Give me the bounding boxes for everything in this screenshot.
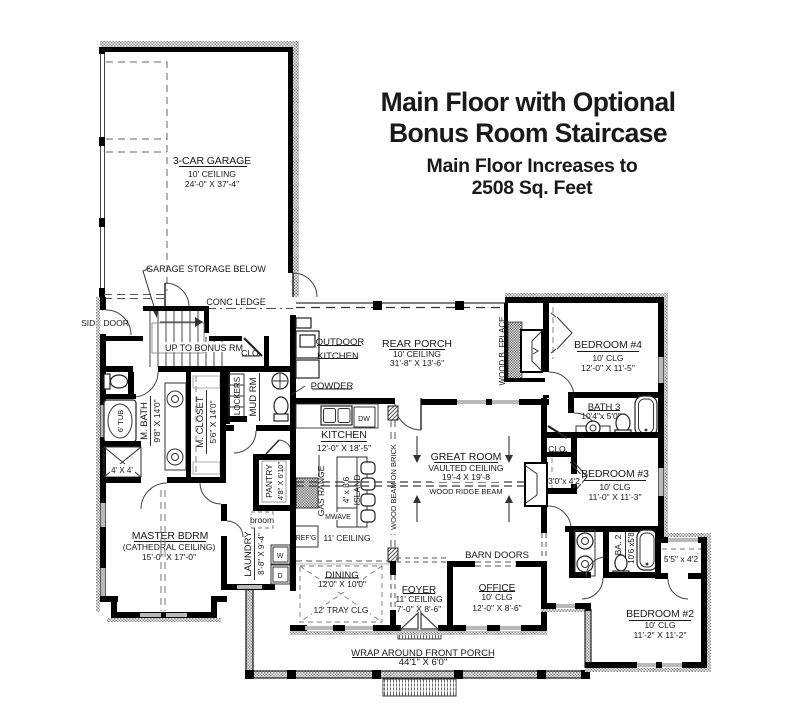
- svg-text:15'-0" X 17'-0": 15'-0" X 17'-0": [142, 552, 196, 562]
- svg-text:M. BATH: M. BATH: [139, 402, 150, 440]
- svg-text:BARN DOORS: BARN DOORS: [465, 550, 529, 561]
- svg-text:5'5" x 4'2: 5'5" x 4'2: [664, 554, 698, 564]
- svg-text:2508 Sq. Feet: 2508 Sq. Feet: [472, 177, 594, 199]
- svg-text:12'0" X 10'0": 12'0" X 10'0": [318, 579, 366, 589]
- svg-text:W: W: [277, 553, 284, 560]
- svg-text:Bonus Room Staircase: Bonus Room Staircase: [389, 118, 667, 148]
- svg-text:broom: broom: [250, 515, 274, 525]
- svg-text:19'-4 X 19'-8: 19'-4 X 19'-8: [442, 472, 490, 482]
- svg-text:BEDROOM #3: BEDROOM #3: [581, 468, 649, 480]
- svg-text:PANTRY: PANTRY: [264, 464, 274, 498]
- svg-text:DW: DW: [358, 416, 370, 423]
- svg-text:UP TO BONUS RM: UP TO BONUS RM: [165, 343, 243, 353]
- svg-text:31'-8" X 13'-6": 31'-8" X 13'-6": [390, 358, 444, 368]
- svg-text:6' TUB: 6' TUB: [116, 410, 125, 433]
- svg-text:10' CLG: 10' CLG: [644, 620, 676, 630]
- svg-text:4' x 8'6: 4' x 8'6: [341, 477, 351, 504]
- svg-text:GARAGE STORAGE BELOW: GARAGE STORAGE BELOW: [146, 264, 266, 274]
- svg-text:WOOD RIDGE BEAM: WOOD RIDGE BEAM: [429, 487, 502, 496]
- svg-text:CLO.: CLO.: [241, 348, 261, 358]
- svg-text:(CATHEDRAL CEILING): (CATHEDRAL CEILING): [123, 542, 216, 552]
- svg-text:CONC LEDGE: CONC LEDGE: [206, 297, 266, 307]
- svg-text:9'8" X 14'0": 9'8" X 14'0": [152, 399, 162, 442]
- svg-text:10' CLG: 10' CLG: [592, 353, 624, 363]
- svg-text:10' CLG: 10' CLG: [599, 482, 631, 492]
- svg-text:4' X 4': 4' X 4': [111, 466, 133, 475]
- svg-text:12'-0" X 11'-5": 12'-0" X 11'-5": [581, 363, 635, 373]
- svg-text:MASTER BDRM: MASTER BDRM: [132, 530, 209, 542]
- svg-text:7'-0" X 8'-6": 7'-0" X 8'-6": [397, 604, 442, 614]
- svg-text:MWAVE: MWAVE: [325, 514, 351, 521]
- svg-text:Main Floor with Optional: Main Floor with Optional: [381, 87, 676, 117]
- svg-text:GAS RANGE: GAS RANGE: [316, 465, 326, 516]
- svg-text:D: D: [277, 573, 282, 580]
- svg-text:10' CLG: 10' CLG: [481, 592, 513, 602]
- svg-text:3-CAR GARAGE: 3-CAR GARAGE: [173, 155, 251, 167]
- svg-text:LAUNDRY: LAUNDRY: [243, 531, 254, 577]
- svg-text:11' CEILING: 11' CEILING: [395, 594, 443, 604]
- svg-text:BEDROOM #4: BEDROOM #4: [574, 339, 642, 351]
- svg-text:KITCHEN: KITCHEN: [321, 429, 366, 441]
- svg-text:M. CLOSET: M. CLOSET: [195, 396, 206, 447]
- svg-text:44'1" X 6'0": 44'1" X 6'0": [399, 657, 447, 668]
- svg-text:SIDE DOOR: SIDE DOOR: [81, 318, 129, 328]
- svg-text:LOCKERS: LOCKERS: [233, 377, 242, 415]
- svg-text:WOOD B. FPLACE: WOOD B. FPLACE: [498, 317, 507, 386]
- svg-text:POWDER: POWDER: [311, 381, 354, 392]
- svg-text:GREAT ROOM: GREAT ROOM: [431, 451, 502, 463]
- svg-text:4'8" X 6'10": 4'8" X 6'10": [276, 462, 285, 501]
- svg-text:REF'G: REF'G: [296, 535, 317, 542]
- svg-text:10'4"x 5'0": 10'4"x 5'0": [581, 411, 621, 421]
- svg-text:3'0"x 4'2: 3'0"x 4'2: [548, 476, 580, 486]
- svg-text:MUD RM: MUD RM: [248, 377, 259, 416]
- svg-text:5'6" X 14'0": 5'6" X 14'0": [208, 400, 218, 443]
- svg-text:11'-0" X 11'-3": 11'-0" X 11'-3": [588, 492, 641, 502]
- svg-text:24'-0" X 37'-4": 24'-0" X 37'-4": [185, 179, 239, 189]
- svg-text:BEDROOM #2: BEDROOM #2: [626, 608, 694, 620]
- svg-text:10' CEILING: 10' CEILING: [188, 169, 236, 179]
- svg-text:11' CEILING: 11' CEILING: [323, 533, 371, 543]
- svg-text:8'-8" X 9'-4": 8'-8" X 9'-4": [257, 533, 266, 575]
- svg-text:12'-0" X 8'-6": 12'-0" X 8'-6": [472, 603, 522, 613]
- svg-text:12'-0" X 18'-5": 12'-0" X 18'-5": [317, 443, 371, 453]
- svg-text:WOOD BEAM ON BRICK: WOOD BEAM ON BRICK: [389, 444, 398, 530]
- svg-text:10'6 x5'8: 10'6 x5'8: [627, 532, 636, 564]
- svg-text:12' TRAY CLG: 12' TRAY CLG: [313, 605, 368, 615]
- svg-text:11'-2" X 11'-2": 11'-2" X 11'-2": [633, 630, 686, 640]
- svg-text:KITCHEN: KITCHEN: [317, 351, 359, 362]
- svg-text:ISLAND: ISLAND: [352, 475, 362, 506]
- svg-text:OUTDOOR: OUTDOOR: [316, 337, 365, 348]
- svg-text:Main Floor Increases to: Main Floor Increases to: [427, 155, 638, 177]
- svg-text:BA. 2: BA. 2: [613, 534, 623, 555]
